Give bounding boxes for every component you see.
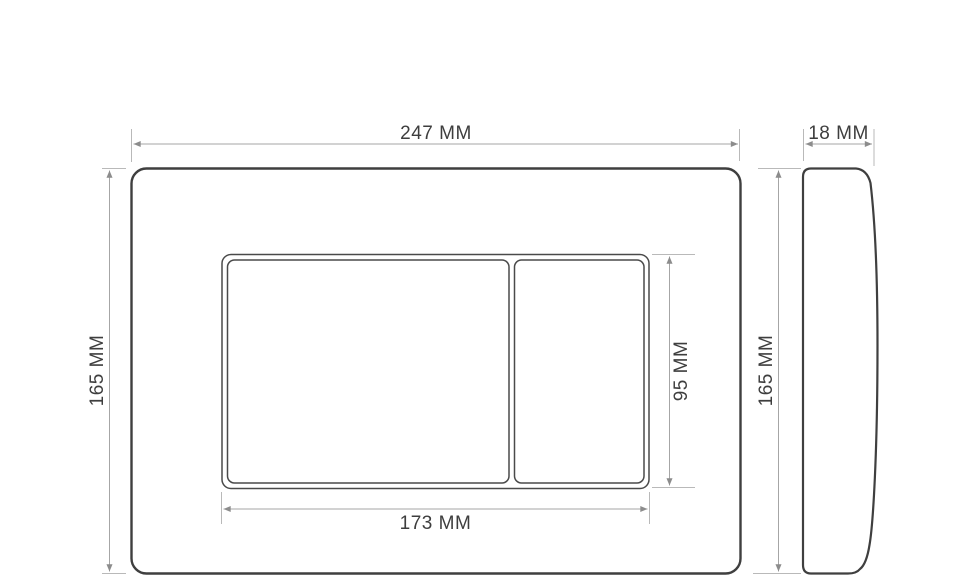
flush-plate-side-profile xyxy=(803,169,878,574)
dim-label-side-depth: 18 MM xyxy=(808,123,869,144)
dim-label-plate-width: 247 MM xyxy=(400,123,472,144)
flush-plate-dimension-diagram: 247 MM 165 MM 173 MM 95 MM 1 xyxy=(0,0,968,587)
dimension-side-depth: 18 MM xyxy=(804,123,875,166)
small-flush-button xyxy=(515,260,645,483)
technical-drawing-svg: 247 MM 165 MM 173 MM 95 MM 1 xyxy=(0,0,968,587)
dim-label-buttons-height: 95 MM xyxy=(671,341,692,402)
dimension-plate-width: 247 MM xyxy=(132,123,740,162)
dim-label-plate-height: 165 MM xyxy=(87,335,108,407)
dimension-side-height: 165 MM xyxy=(753,169,801,574)
dimension-plate-height-left: 165 MM xyxy=(87,169,126,574)
dim-label-side-height: 165 MM xyxy=(756,335,777,407)
dim-label-buttons-width: 173 MM xyxy=(400,513,472,534)
large-flush-button xyxy=(228,260,510,483)
side-view xyxy=(803,169,878,574)
